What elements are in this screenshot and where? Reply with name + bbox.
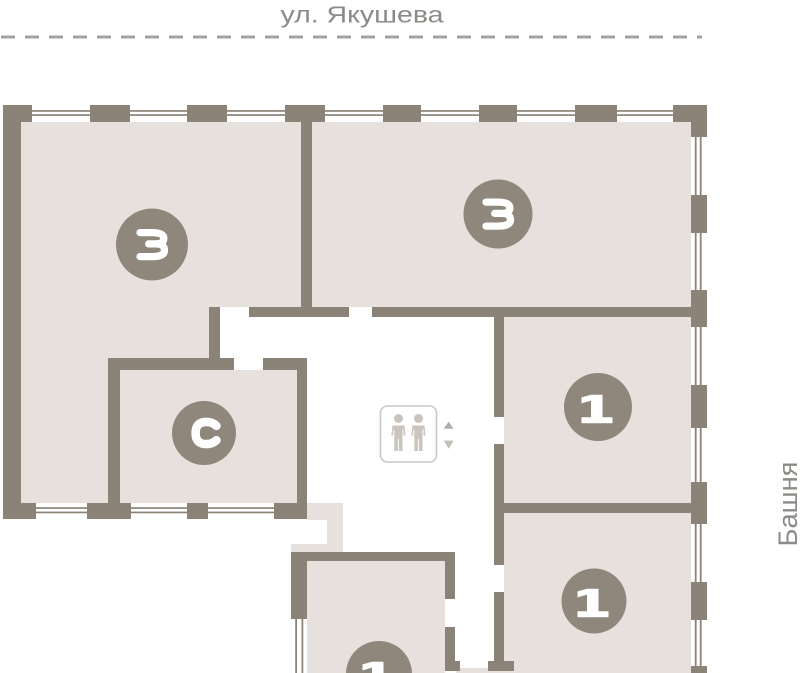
svg-text:Башня: Башня xyxy=(773,462,801,547)
svg-text:ул. Якушева: ул. Якушева xyxy=(281,2,444,28)
